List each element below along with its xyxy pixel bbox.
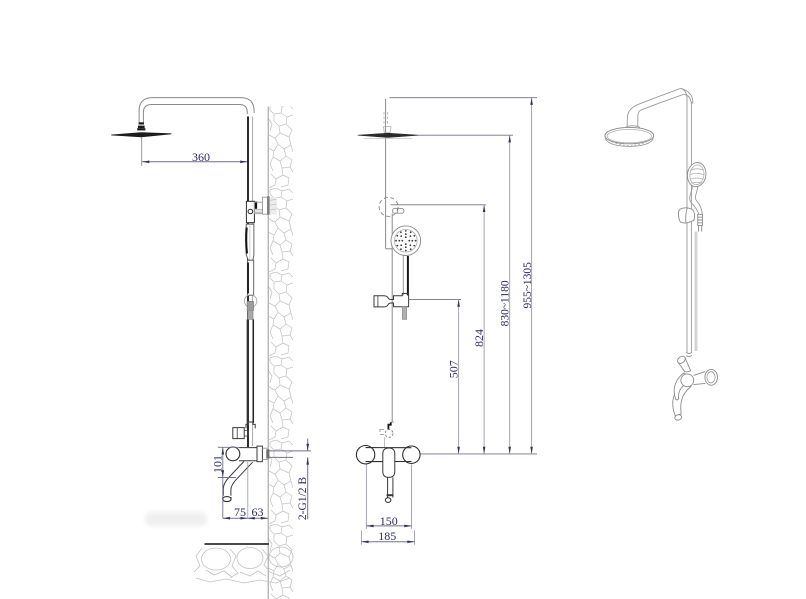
svg-text:360: 360 [192, 150, 210, 164]
svg-text:824: 824 [472, 329, 486, 347]
svg-text:830~1180: 830~1180 [499, 280, 511, 326]
svg-text:507: 507 [447, 360, 461, 378]
svg-text:2-G1/2 B: 2-G1/2 B [297, 477, 309, 520]
svg-text:75: 75 [234, 505, 246, 519]
svg-text:150: 150 [380, 514, 398, 528]
svg-text:955~1305: 955~1305 [522, 262, 534, 309]
svg-text:185: 185 [378, 529, 396, 543]
svg-text:101: 101 [211, 455, 225, 473]
svg-text:63: 63 [252, 505, 264, 519]
